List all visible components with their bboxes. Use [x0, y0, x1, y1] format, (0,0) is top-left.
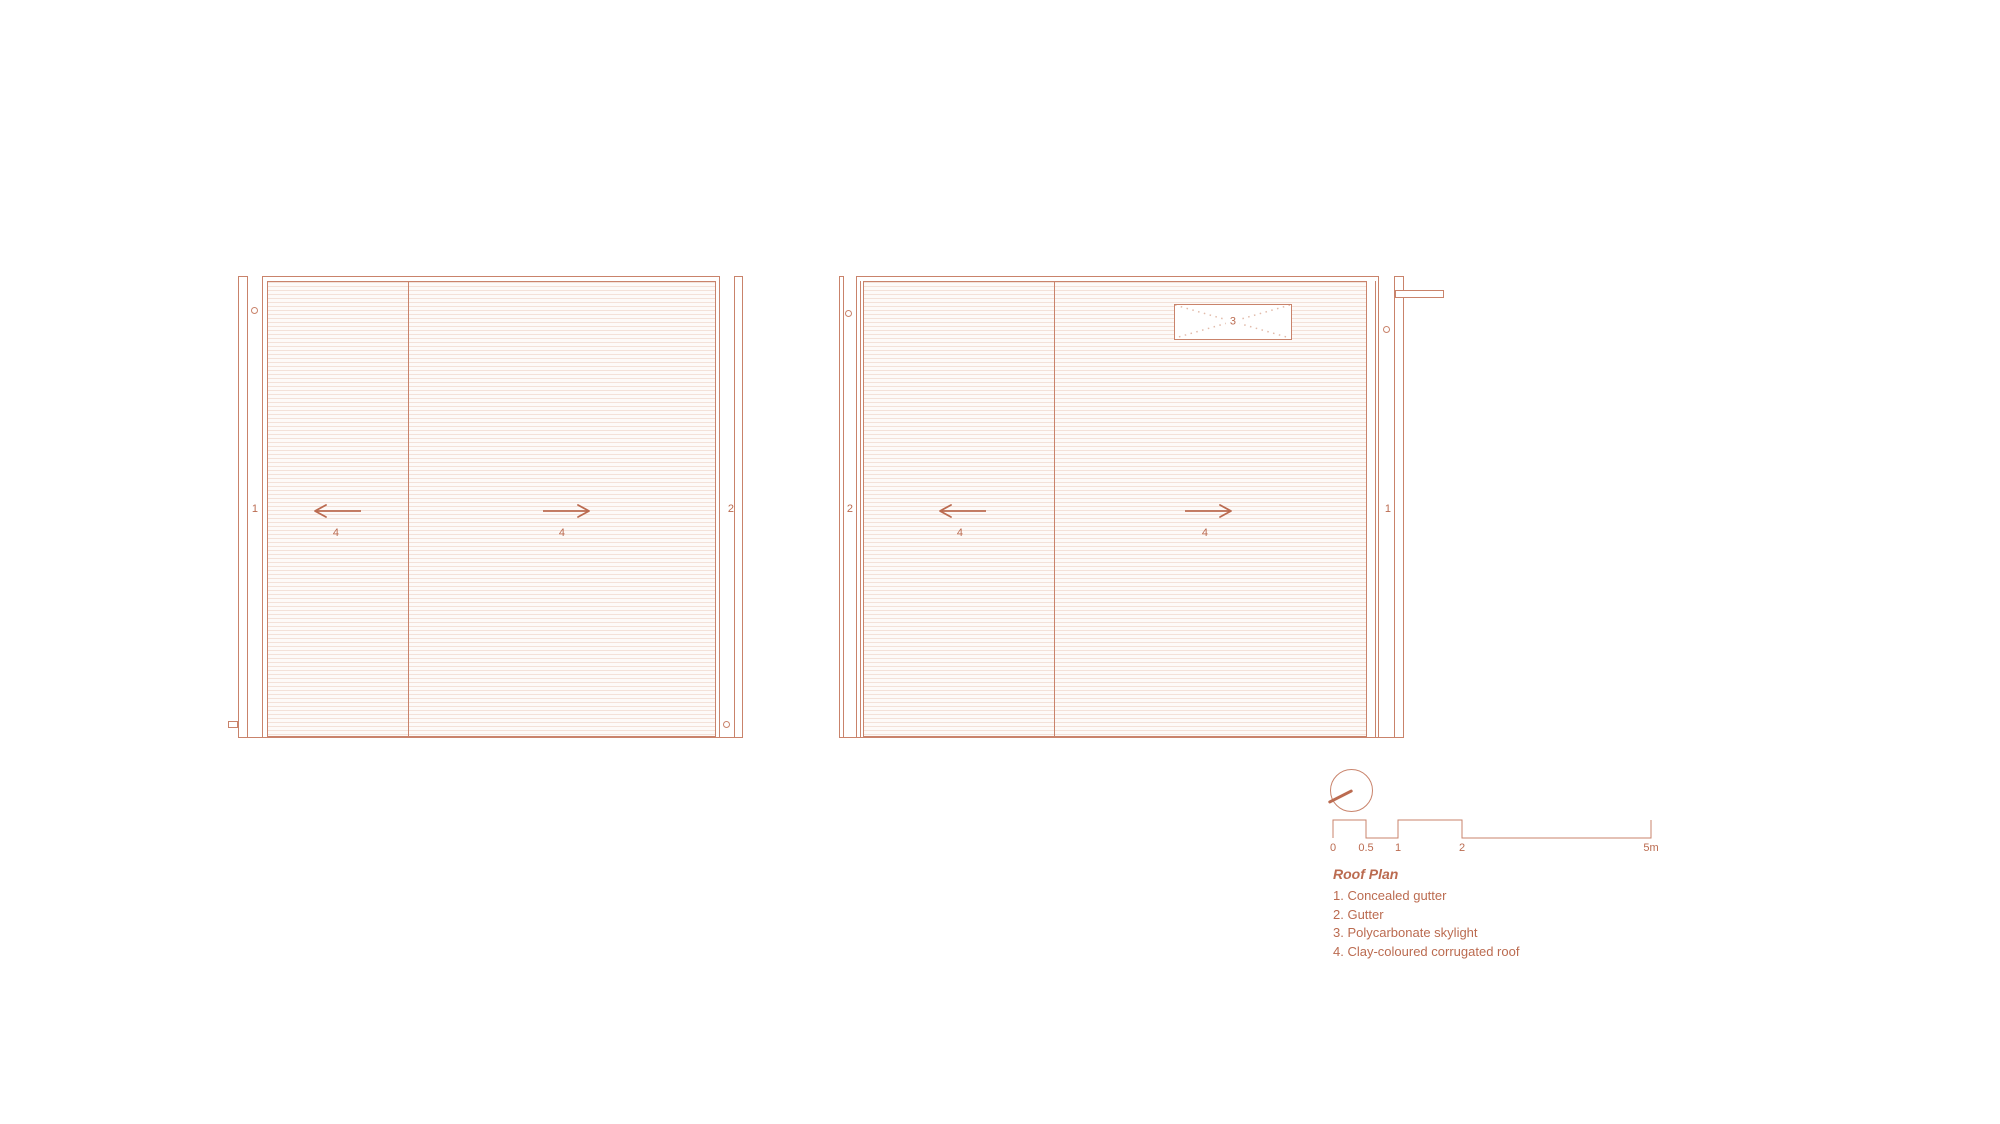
scale-tick-label: 5m	[1636, 842, 1666, 854]
roof-slope-arrow-right-icon	[1182, 503, 1236, 519]
roof-edge-bottom	[839, 737, 1404, 738]
callout-gutter: 2	[843, 502, 857, 516]
scale-tick-label: 0.5	[1351, 842, 1381, 854]
roof-slope-arrow-left-icon	[310, 503, 364, 519]
legend-item-corrugated-roof: 4. Clay-coloured corrugated roof	[1333, 943, 1519, 962]
drawing-title: Roof Plan	[1333, 866, 1519, 882]
gutter-outlet-tab	[228, 721, 238, 728]
callout-corrugated-roof: 4	[554, 526, 570, 540]
roof-edge-left	[238, 276, 239, 738]
rainwater-spout	[1395, 290, 1444, 298]
fixing-circle	[723, 721, 730, 728]
scale-bar-icon	[1330, 818, 1656, 840]
sheet-edge-line	[860, 281, 861, 737]
callout-gutter: 2	[724, 502, 738, 516]
roof-edge-top	[238, 276, 743, 277]
roof-plan-drawing-right: 2 3 4 4 1	[839, 276, 1405, 742]
callout-concealed-gutter: 1	[1381, 502, 1395, 516]
legend-item-skylight: 3. Polycarbonate skylight	[1333, 924, 1519, 943]
callout-skylight: 3	[1226, 315, 1240, 329]
legend-item-concealed-gutter: 1. Concealed gutter	[1333, 887, 1519, 906]
scale-tick-label: 2	[1447, 842, 1477, 854]
polycarbonate-skylight: 3	[1174, 304, 1292, 340]
roof-plan-drawing-left: 1 4 4 2	[238, 276, 743, 742]
roof-edge-right	[1403, 276, 1404, 738]
legend: Roof Plan 1. Concealed gutter 2. Gutter …	[1333, 866, 1519, 961]
roof-edge-bottom	[238, 737, 743, 738]
roof-plan-sheet: 1 4 4 2 2 3	[0, 0, 2000, 1124]
sheet-edge-line	[1375, 281, 1376, 737]
callout-corrugated-roof: 4	[328, 526, 344, 540]
roof-slope-arrow-right-icon	[540, 503, 594, 519]
scale-tick-label: 0	[1318, 842, 1348, 854]
roof-edge-left	[839, 276, 840, 738]
legend-item-gutter: 2. Gutter	[1333, 906, 1519, 925]
scale-tick-label: 1	[1383, 842, 1413, 854]
fixing-circle	[1383, 326, 1390, 333]
roof-edge-top	[839, 276, 1404, 277]
fixing-circle	[251, 307, 258, 314]
callout-concealed-gutter: 1	[248, 502, 262, 516]
callout-corrugated-roof: 4	[1197, 526, 1213, 540]
roof-edge-right	[742, 276, 743, 738]
roof-slope-arrow-left-icon	[935, 503, 989, 519]
callout-corrugated-roof: 4	[952, 526, 968, 540]
fixing-circle	[845, 310, 852, 317]
